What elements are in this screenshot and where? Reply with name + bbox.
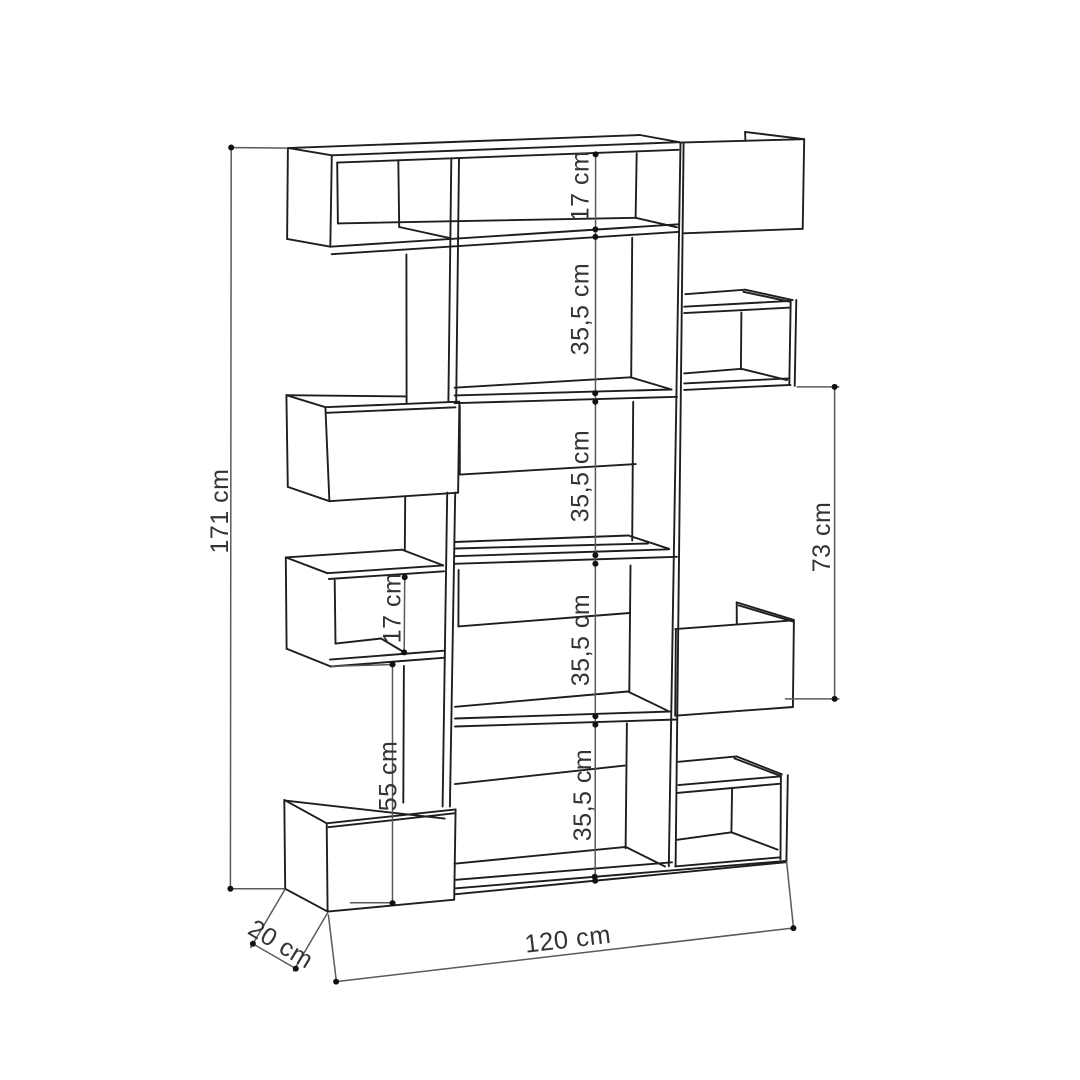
svg-text:73 cm: 73 cm xyxy=(808,502,836,573)
svg-text:35,5 cm: 35,5 cm xyxy=(567,263,595,355)
svg-text:35,5 cm: 35,5 cm xyxy=(567,430,595,522)
svg-text:17 cm: 17 cm xyxy=(567,151,595,222)
svg-text:17 cm: 17 cm xyxy=(379,573,407,644)
svg-text:35,5 cm: 35,5 cm xyxy=(569,749,597,841)
svg-text:171 cm: 171 cm xyxy=(206,469,234,554)
svg-text:55 cm: 55 cm xyxy=(375,741,403,812)
svg-text:35,5 cm: 35,5 cm xyxy=(567,594,595,686)
